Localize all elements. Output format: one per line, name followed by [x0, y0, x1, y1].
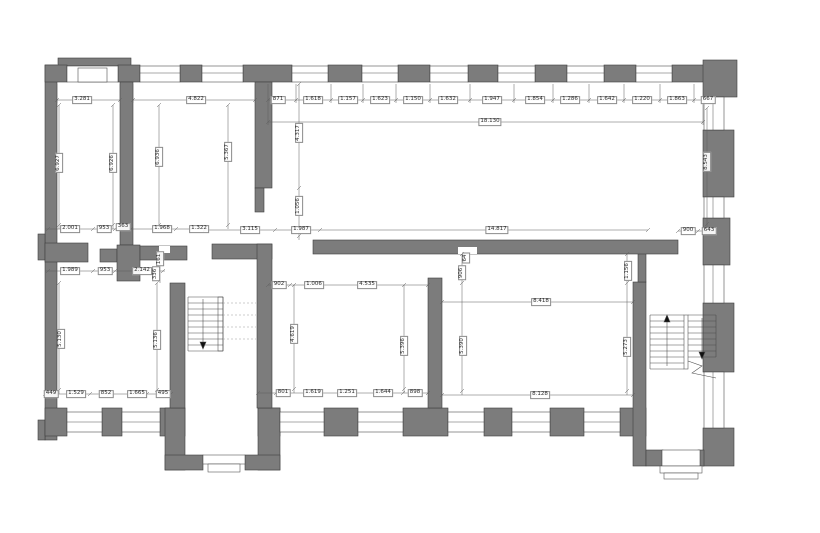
floor-plan-canvas: 3.2814.8228711.6181.1571.6231.1501.6321.… [0, 0, 820, 533]
floor-plan-drawing [0, 0, 820, 533]
walls-layer [38, 58, 737, 470]
stairs-left [188, 297, 256, 351]
dimension-lines-layer [43, 82, 715, 397]
